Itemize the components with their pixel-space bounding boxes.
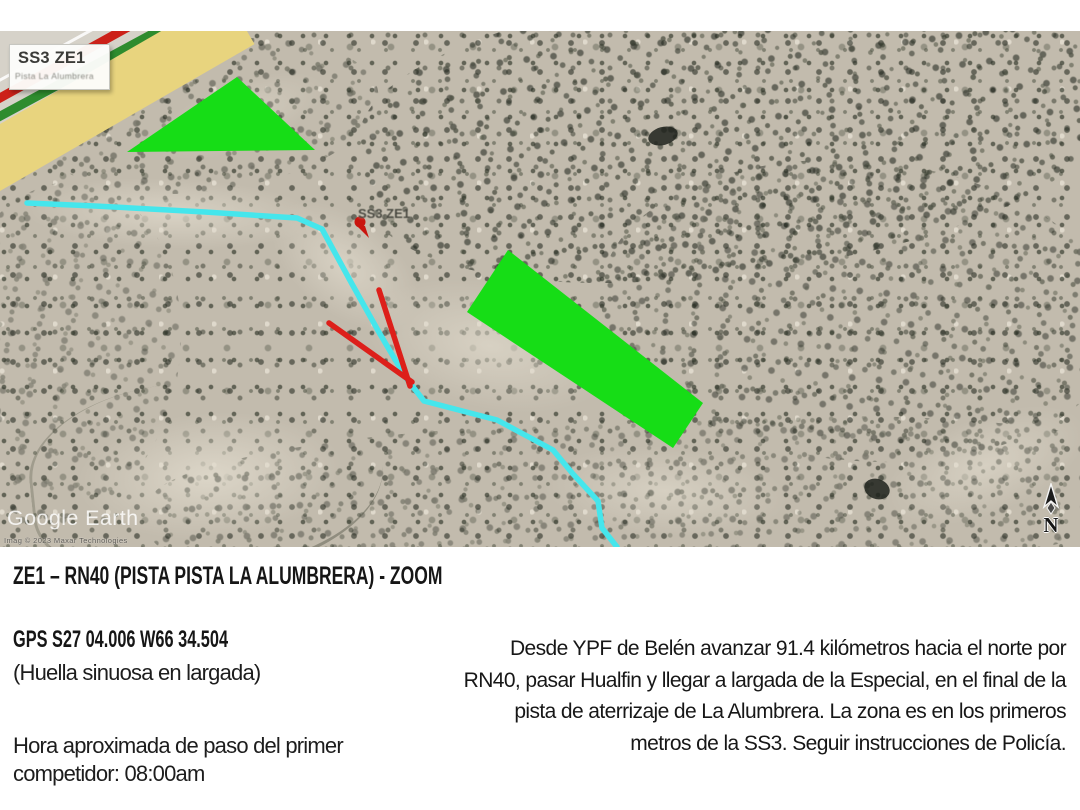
zone-rectangle <box>467 250 703 448</box>
directions-line-3: pista de aterrizaje de La Alumbrera. La … <box>386 696 1066 728</box>
pass-time-line-1: Hora aproximada de paso del primer <box>13 732 343 760</box>
directions-line-1: Desde YPF de Belén avanzar 91.4 kilómetr… <box>386 633 1066 665</box>
placemark-label: SS3 ZE1 <box>358 206 410 221</box>
directions-paragraph: Desde YPF de Belén avanzar 91.4 kilómetr… <box>386 633 1066 759</box>
route-line <box>27 203 617 547</box>
page-root: { "map": { "legend": { "title": "SS3 ZE1… <box>0 0 1080 810</box>
directions-line-4: metros de la SS3. Seguir instrucciones d… <box>386 728 1066 760</box>
imagery-attribution: Imag © 2023 Maxar Technologies <box>4 536 128 545</box>
placemark-tail <box>356 225 369 238</box>
pass-time-note: Hora aproximada de paso del primer compe… <box>13 732 343 787</box>
north-arrow-icon <box>1038 483 1064 515</box>
satellite-map: SS3 ZE1 SS3 ZE1 Pista La Alumbrera Googl… <box>0 31 1080 547</box>
map-overlays <box>0 31 1080 547</box>
stage-title: ZE1 – RN40 (PISTA PISTA LA ALUMBRERA) - … <box>13 562 442 591</box>
legend-title: SS3 ZE1 <box>18 49 109 68</box>
surface-note: (Huella sinuosa en largada) <box>13 660 260 686</box>
north-label: N <box>1036 515 1066 536</box>
north-indicator: N <box>1036 483 1066 536</box>
legend-subtitle: Pista La Alumbrera <box>15 71 109 81</box>
google-earth-watermark: Google Earth <box>7 506 139 531</box>
directions-line-2: RN40, pasar Hualfin y llegar a largada d… <box>386 665 1066 697</box>
gps-coordinates: GPS S27 04.006 W66 34.504 <box>13 626 228 654</box>
pass-time-line-2: competidor: 08:00am <box>13 760 343 788</box>
legend-box: SS3 ZE1 Pista La Alumbrera <box>9 44 110 90</box>
